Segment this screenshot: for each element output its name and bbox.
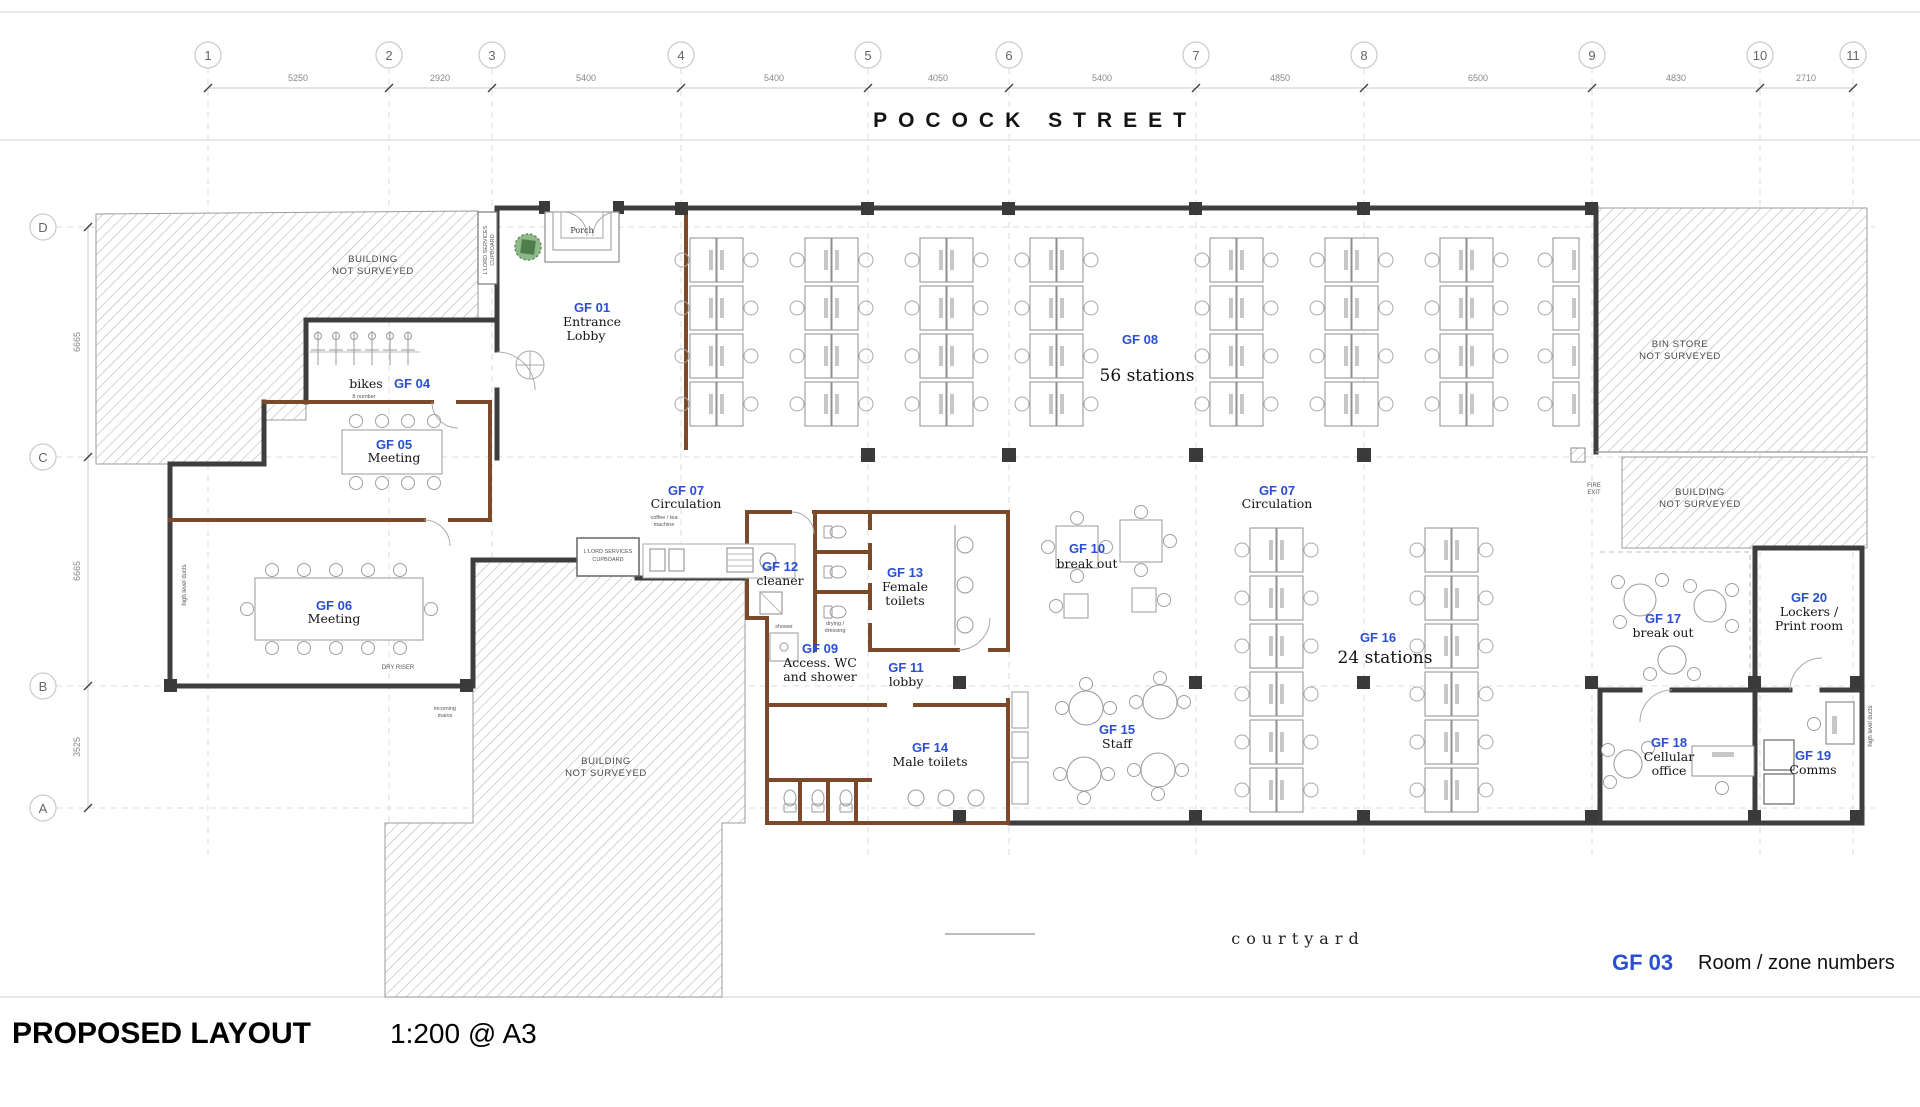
- room-name-gf18-2: office: [1652, 763, 1687, 778]
- room-name-gf13-2: toilets: [885, 593, 924, 608]
- room-code-gf16: GF 16: [1360, 630, 1396, 645]
- hatch-bin-store: [1598, 208, 1867, 452]
- room-name-gf17: break out: [1633, 625, 1694, 640]
- room-name-gf19: Comms: [1789, 762, 1836, 777]
- room-name-gf09-2: and shower: [783, 669, 857, 684]
- room-code-gf09: GF 09: [802, 641, 838, 656]
- coffee-machine-2: machine: [654, 522, 675, 528]
- dim-2-3: 2920: [430, 73, 450, 83]
- bike-rack: [308, 331, 420, 365]
- bin-store-1: BIN STORE: [1652, 339, 1708, 350]
- not-surveyed-top-left-2: NOT SURVEYED: [332, 266, 414, 277]
- sheet-title: PROPOSED LAYOUT: [12, 1017, 311, 1050]
- room-name-gf13-1: Female: [882, 579, 928, 594]
- grid-bubble-1: 1: [204, 48, 211, 63]
- room-name-gf05: Meeting: [368, 450, 421, 465]
- room-name-gf20-1: Lockers /: [1780, 604, 1839, 619]
- room-note-gf04: 8 number: [352, 394, 375, 400]
- dim-C-B: 6665: [72, 561, 82, 581]
- grid-bubbles-top: 1 2 3 4 5 6 7 8 9 10 11: [195, 42, 1866, 68]
- grid-bubble-8: 8: [1360, 48, 1367, 63]
- grid-bubble-7: 7: [1192, 48, 1199, 63]
- grid-bubble-2: 2: [385, 48, 392, 63]
- dim-5-6: 4050: [928, 73, 948, 83]
- legend: GF 03 Room / zone numbers: [1612, 950, 1895, 975]
- room-name-gf15: Staff: [1102, 736, 1133, 751]
- grid-bubble-11: 11: [1846, 48, 1860, 63]
- room-code-gf18: GF 18: [1651, 735, 1687, 750]
- title-block: PROPOSED LAYOUT 1:200 @ A3: [12, 1017, 537, 1050]
- room-name-gf04: bikes: [349, 376, 382, 391]
- legend-room-label: Room / zone numbers: [1698, 952, 1895, 974]
- drying-label-2: dressing: [825, 628, 846, 634]
- hatched-column-fire-exit: [1571, 448, 1585, 462]
- room-name-gf01-2: Lobby: [567, 328, 607, 343]
- room-name-gf12: cleaner: [756, 573, 803, 588]
- fire-exit-1: FIRE: [1587, 483, 1601, 489]
- bin-store-2: NOT SURVEYED: [1639, 351, 1721, 362]
- room-name-gf06: Meeting: [308, 611, 361, 626]
- coffee-machine-1: coffee / tea: [650, 515, 678, 521]
- shower-label: shower: [775, 624, 793, 630]
- dim-4-5: 5400: [764, 73, 784, 83]
- grid-bubble-B: B: [39, 679, 48, 694]
- floor-plan-sheet: 5250 2920 5400 5400 4050 5400 4850 6500 …: [0, 0, 1920, 1107]
- room-name-gf01-1: Entrance: [563, 314, 621, 329]
- room-name-gf11: lobby: [889, 674, 925, 689]
- grid-bubble-A: A: [39, 801, 48, 816]
- room-code-gf01: GF 01: [574, 300, 610, 315]
- grid-bubbles-left: D C B A 6665 6665 3525: [30, 214, 92, 821]
- dim-7-8: 4850: [1270, 73, 1290, 83]
- not-surveyed-bottom-1: BUILDING: [581, 756, 631, 767]
- not-surveyed-bottom-2: NOT SURVEYED: [565, 768, 647, 779]
- ducts-right: high level ducts: [1868, 705, 1874, 746]
- porch: [545, 212, 619, 262]
- incoming-mains-2: mains: [438, 713, 453, 719]
- not-surveyed-right-1: BUILDING: [1675, 487, 1725, 498]
- dim-D-C: 6665: [72, 332, 82, 352]
- fire-exit-2: EXIT: [1587, 490, 1601, 496]
- courtyard-label: courtyard: [1231, 929, 1364, 948]
- dim-10-11: 2710: [1796, 73, 1816, 83]
- incoming-mains-1: incoming: [434, 706, 456, 712]
- grid-bubble-3: 3: [488, 48, 495, 63]
- grid-bubble-4: 4: [677, 48, 684, 63]
- grid-bubble-6: 6: [1005, 48, 1012, 63]
- ducts-left: high level ducts: [182, 564, 188, 605]
- floor-plan-drawing: 5250 2920 5400 5400 4050 5400 4850 6500 …: [0, 0, 1920, 1107]
- room-code-gf14: GF 14: [912, 740, 949, 755]
- top-dimension-line: 5250 2920 5400 5400 4050 5400 4850 6500 …: [204, 73, 1857, 92]
- room-code-gf10: GF 10: [1069, 541, 1105, 556]
- room-name-gf14: Male toilets: [893, 754, 968, 769]
- room-code-gf17: GF 17: [1645, 611, 1681, 626]
- room-name-gf07-right: Circulation: [1242, 496, 1313, 511]
- grid-bubble-D: D: [38, 220, 47, 235]
- not-surveyed-top-left-1: BUILDING: [348, 254, 398, 265]
- room-code-gf04: GF 04: [394, 376, 431, 391]
- grid-bubble-9: 9: [1588, 48, 1595, 63]
- not-surveyed-right-2: NOT SURVEYED: [1659, 499, 1741, 510]
- dim-B-A: 3525: [72, 737, 82, 757]
- hatch-top-left: [96, 211, 478, 464]
- room-code-gf15: GF 15: [1099, 722, 1135, 737]
- services-cupboard-2-label-1: L'LORD SERVICES: [584, 549, 633, 555]
- svg-text:CUPBOARD: CUPBOARD: [490, 234, 496, 265]
- dim-9-10: 4830: [1666, 73, 1686, 83]
- dim-6-7: 5400: [1092, 73, 1112, 83]
- room-code-gf08: GF 08: [1122, 332, 1158, 347]
- dim-8-9: 6500: [1468, 73, 1488, 83]
- room-name-gf07-left: Circulation: [651, 496, 722, 511]
- porch-label: Porch: [570, 226, 593, 235]
- room-code-gf13: GF 13: [887, 565, 923, 580]
- grid-bubble-5: 5: [864, 48, 871, 63]
- room-code-gf11: GF 11: [888, 660, 923, 675]
- services-cupboard-2-label-2: CUPBOARD: [592, 557, 623, 563]
- room-code-gf19: GF 19: [1795, 748, 1831, 763]
- room-code-gf20: GF 20: [1791, 590, 1827, 605]
- street-name: POCOCK STREET: [873, 109, 1197, 132]
- room-name-gf16: 24 stations: [1338, 648, 1433, 668]
- desk-clusters-gf16: [1235, 528, 1493, 812]
- room-code-gf12: GF 12: [762, 559, 798, 574]
- room-name-gf09-1: Access. WC: [782, 655, 857, 670]
- sheet-scale: 1:200 @ A3: [390, 1018, 537, 1049]
- tree-icon: [515, 234, 541, 260]
- dim-1-2: 5250: [288, 73, 308, 83]
- grid-bubble-10: 10: [1753, 48, 1767, 63]
- svg-text:L'LORD SERVICES: L'LORD SERVICES: [483, 225, 489, 274]
- room-name-gf18-1: Cellular: [1644, 749, 1694, 764]
- drying-label-1: drying /: [826, 621, 845, 627]
- lobby-turnstile: [516, 351, 544, 379]
- room-name-gf08: 56 stations: [1100, 366, 1195, 386]
- grid-bubble-C: C: [38, 450, 47, 465]
- room-name-gf10: break out: [1057, 556, 1118, 571]
- legend-room-code: GF 03: [1612, 950, 1673, 975]
- dry-riser-label: DRY RISER: [382, 665, 415, 671]
- dim-3-4: 5400: [576, 73, 596, 83]
- room-name-gf20-2: Print room: [1775, 618, 1843, 633]
